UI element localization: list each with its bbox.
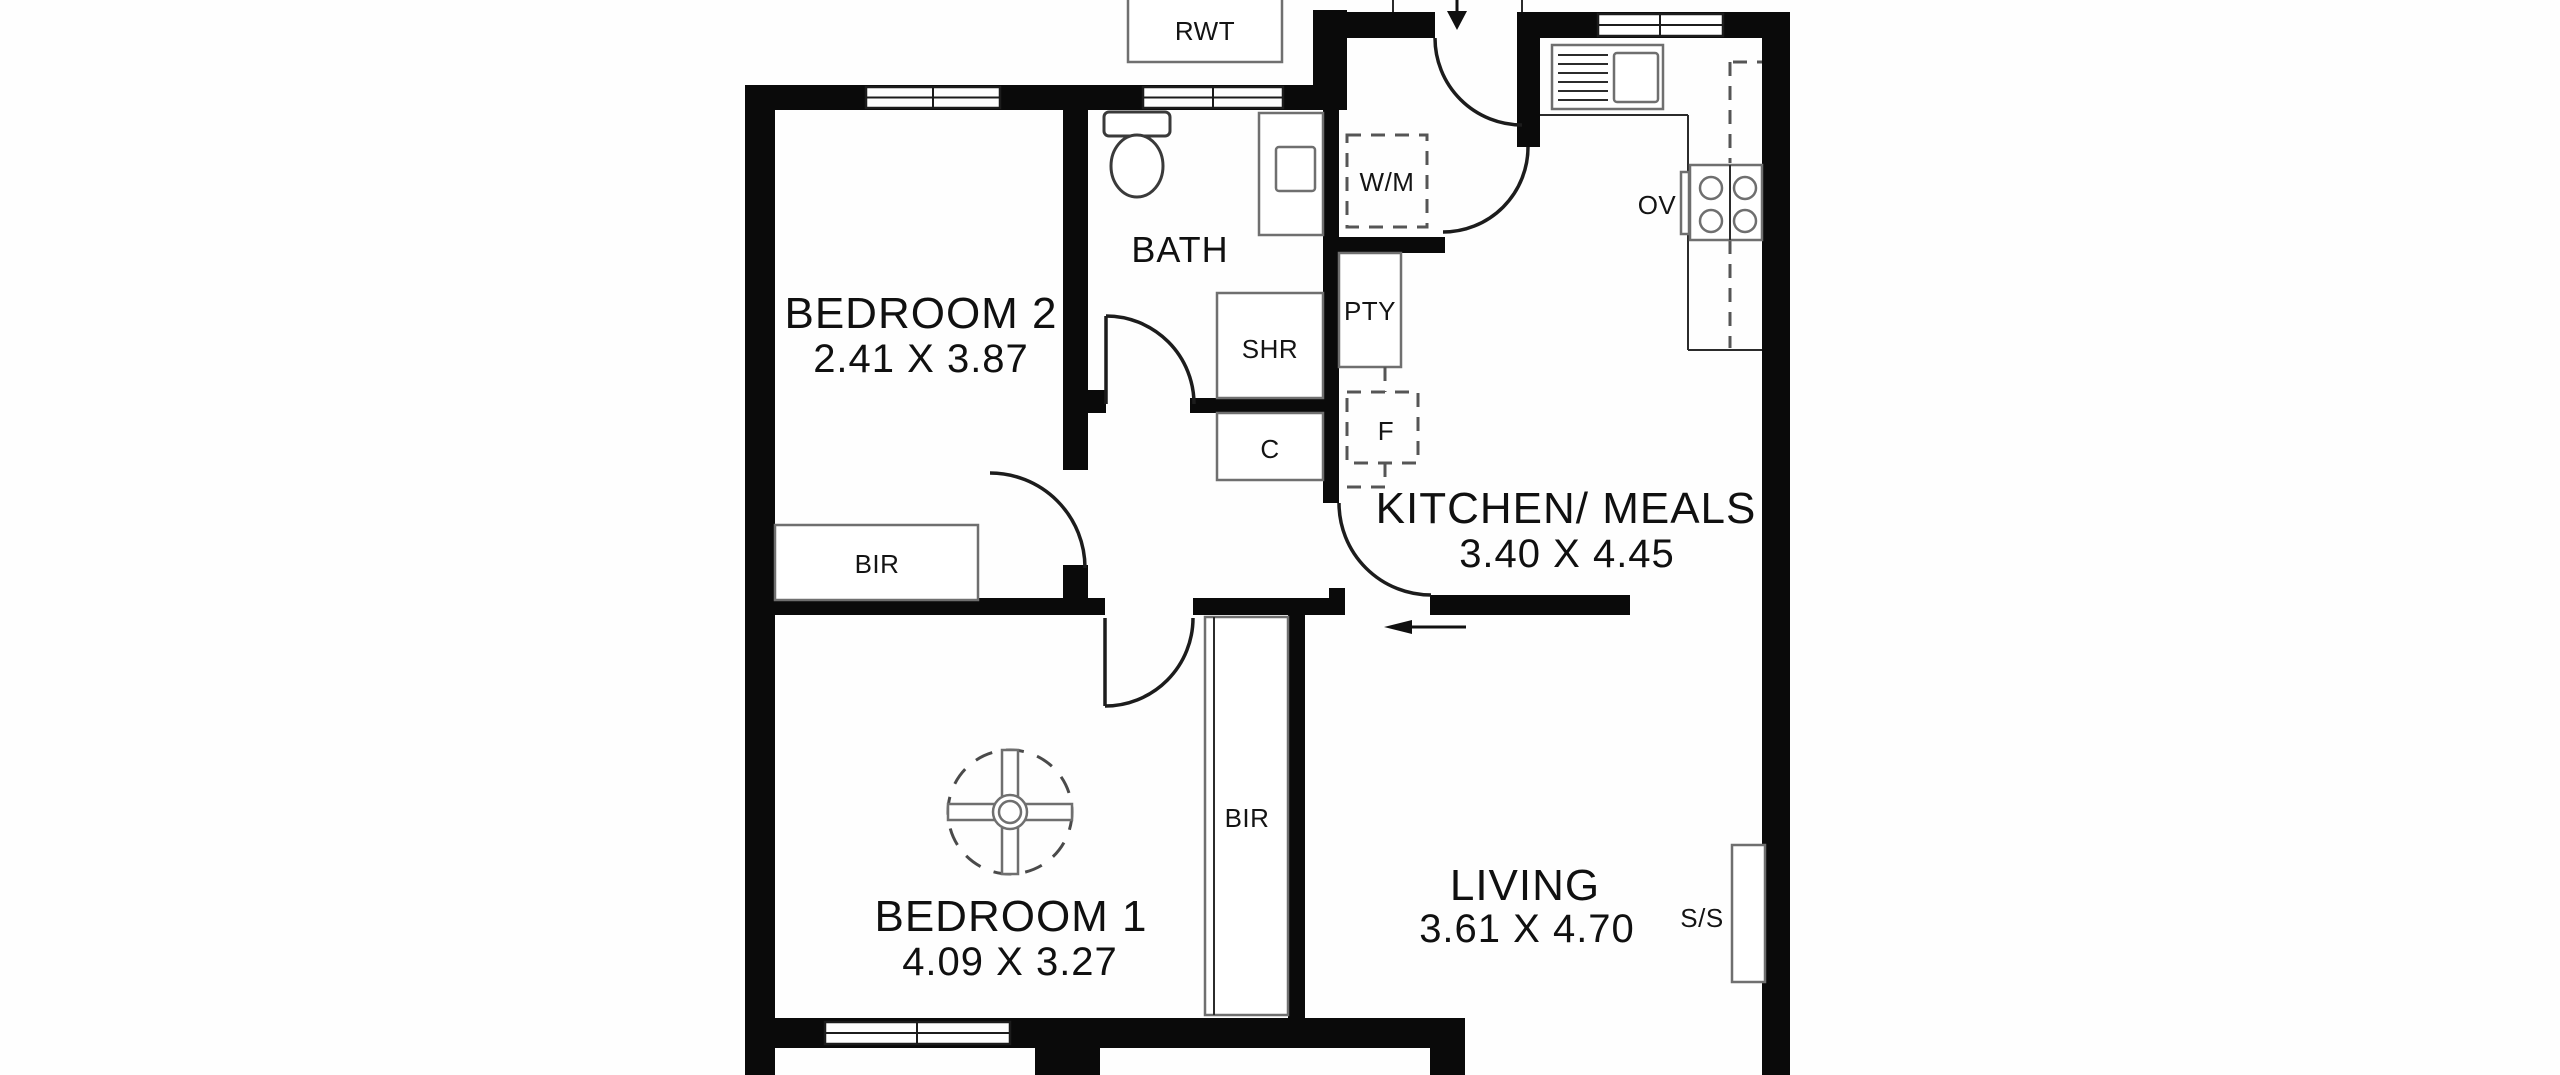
f-label: F	[1378, 416, 1394, 446]
bedroom1-dims: 4.09 X 3.27	[902, 940, 1118, 984]
rwt-label: RWT	[1175, 16, 1235, 46]
window-kitchen	[1598, 14, 1723, 36]
pantry: PTY	[1339, 253, 1401, 367]
window-bedroom1	[825, 1022, 1010, 1044]
cupboard: C	[1217, 413, 1323, 480]
bedroom2-name: BEDROOM 2	[784, 289, 1057, 338]
fridge: F	[1347, 367, 1418, 487]
built-in-robe-bedroom2: BIR	[775, 525, 978, 600]
bir1-label: BIR	[1225, 803, 1270, 833]
door-bedroom2	[990, 473, 1085, 568]
cooktop-icon: OV	[1638, 165, 1762, 240]
entry-arrow-left	[1384, 620, 1466, 634]
ss-label: S/S	[1680, 903, 1723, 933]
washing-machine: W/M	[1347, 135, 1427, 227]
door-entry	[1435, 38, 1522, 125]
shr-label: SHR	[1242, 334, 1298, 364]
toilet-icon	[1104, 112, 1170, 197]
rainwater-tank: RWT	[1128, 0, 1282, 62]
kitchen-dims: 3.40 X 4.45	[1459, 532, 1675, 576]
shower: SHR	[1217, 293, 1323, 398]
bir2-label: BIR	[855, 549, 900, 579]
kitchen-name: KITCHEN/ MEALS	[1376, 484, 1757, 533]
bedroom2-dims: 2.41 X 3.87	[813, 337, 1029, 381]
bedroom1-name: BEDROOM 1	[874, 892, 1147, 941]
stainless-sink-unit: S/S	[1680, 845, 1765, 982]
door-bedroom1	[1105, 618, 1193, 706]
floorplan-svg: RWT W/M PTY SHR C	[0, 0, 2560, 1075]
floorplan-canvas: RWT W/M PTY SHR C	[0, 0, 2560, 1075]
window-bath	[1143, 87, 1283, 108]
bath-name: BATH	[1131, 229, 1228, 270]
living-name: LIVING	[1450, 861, 1600, 910]
ov-label: OV	[1638, 190, 1677, 220]
pty-label: PTY	[1344, 296, 1396, 326]
c-label: C	[1260, 434, 1279, 464]
door-bath	[1106, 316, 1194, 404]
door-laundry-kitchen	[1443, 147, 1528, 232]
built-in-robe-bedroom1: BIR	[1205, 617, 1288, 1015]
kitchen-sink-icon	[1552, 45, 1663, 109]
ceiling-fan-icon	[948, 750, 1072, 874]
living-dims: 3.61 X 4.70	[1419, 907, 1635, 951]
wm-label: W/M	[1360, 167, 1415, 197]
window-bedroom2	[866, 87, 1000, 108]
vanity-icon	[1259, 113, 1323, 235]
entry-arrow-down	[1447, 0, 1467, 30]
